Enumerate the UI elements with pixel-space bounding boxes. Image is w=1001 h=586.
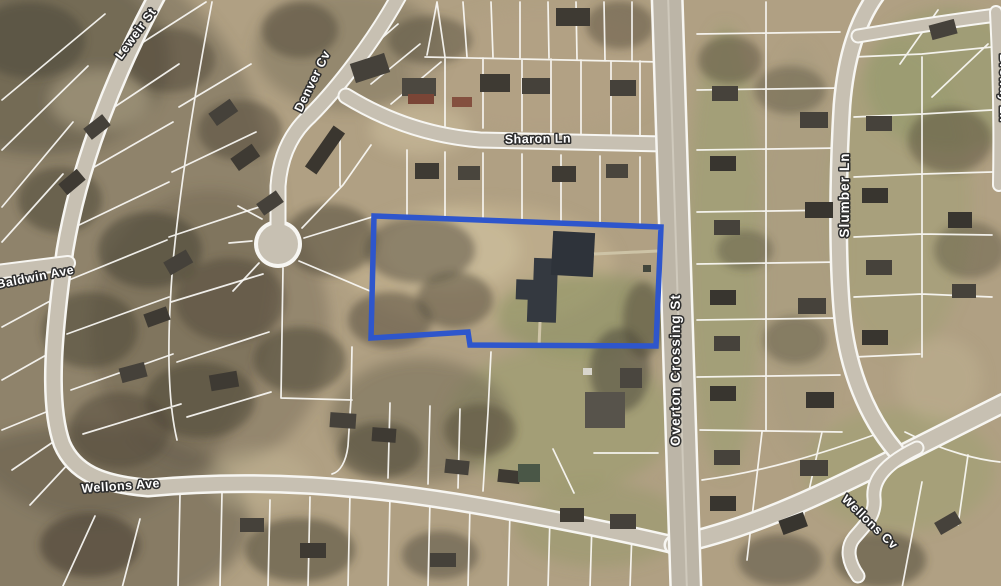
map-canvas[interactable]: Leweir St Denver Cv Sharon Ln Baldwin Av… [0,0,1001,586]
street-label-slumber-ln: Slumber Ln [837,152,852,237]
street-label-sharon-ln: Sharon Ln [505,131,572,146]
street-label-overton-crossing-st: Overton Crossing St [668,294,683,446]
street-label-broway-ln: Broway Ln [997,54,1001,122]
